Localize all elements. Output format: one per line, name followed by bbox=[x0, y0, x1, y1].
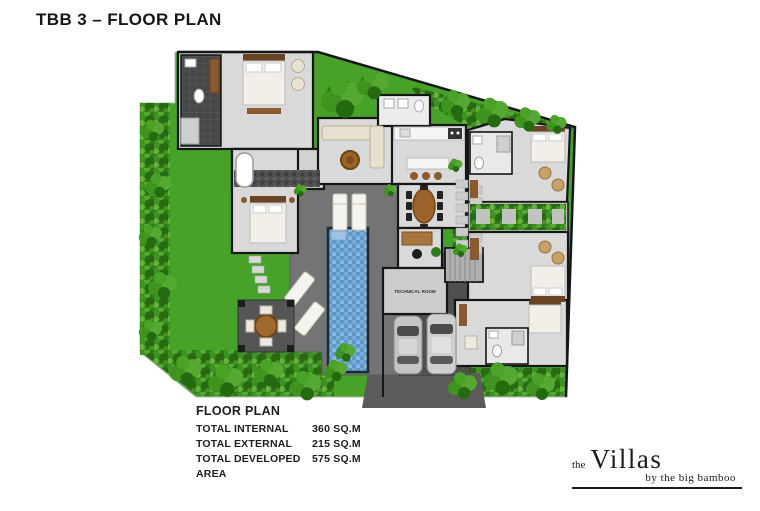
summary-label: TOTAL EXTERNAL bbox=[196, 437, 312, 452]
toilet-icon bbox=[475, 157, 484, 169]
summary-row-external: TOTAL EXTERNAL 215 SQ.M bbox=[196, 437, 426, 452]
chair bbox=[246, 320, 254, 332]
desk-chair bbox=[412, 249, 422, 259]
sofa-chaise bbox=[370, 126, 384, 168]
pool-steps bbox=[331, 231, 346, 240]
stool-icon bbox=[434, 172, 442, 180]
logo-prefix: the bbox=[572, 459, 585, 471]
dining-table bbox=[413, 189, 435, 223]
wardrobe bbox=[470, 180, 478, 198]
wardrobe bbox=[470, 238, 479, 260]
sink-icon bbox=[489, 331, 498, 338]
chair bbox=[465, 336, 477, 349]
floor-plan-summary: FLOOR PLAN TOTAL INTERNAL 360 SQ.M TOTAL… bbox=[196, 404, 426, 482]
armchair bbox=[552, 252, 564, 264]
pouf-chair bbox=[292, 60, 305, 73]
chair bbox=[260, 338, 272, 346]
bathtub-icon bbox=[236, 153, 253, 187]
summary-label: TOTAL INTERNAL bbox=[196, 422, 312, 437]
toilet-icon bbox=[493, 345, 502, 357]
logo-name: Villas bbox=[590, 444, 662, 475]
technical-room-label: TECHNICAL ROOM bbox=[394, 289, 435, 294]
summary-value: 215 SQ.M bbox=[312, 437, 426, 452]
car-1 bbox=[394, 316, 422, 374]
sink-icon bbox=[185, 59, 196, 67]
armchair bbox=[552, 179, 564, 191]
outdoor-table bbox=[255, 315, 277, 337]
plant-strip bbox=[470, 204, 566, 230]
summary-value: 575 SQ.M bbox=[312, 452, 426, 482]
toilet-icon bbox=[415, 100, 424, 112]
kitchen-island bbox=[407, 158, 449, 169]
stool-icon bbox=[410, 172, 418, 180]
sink-icon bbox=[473, 136, 482, 144]
pouf-chair bbox=[292, 78, 305, 91]
summary-row-developed: TOTAL DEVELOPED AREA 575 SQ.M bbox=[196, 452, 426, 482]
summary-heading: FLOOR PLAN bbox=[196, 404, 426, 418]
sink-icon bbox=[400, 129, 410, 137]
brand-logo: the Villas by the big bamboo bbox=[572, 444, 742, 489]
shower-icon bbox=[512, 331, 524, 345]
armchair bbox=[539, 167, 551, 179]
toilet-icon bbox=[194, 89, 204, 103]
shower-icon bbox=[497, 136, 510, 152]
chair bbox=[260, 306, 272, 314]
vanity-counter bbox=[210, 59, 219, 93]
logo-rule bbox=[572, 487, 742, 489]
summary-value: 360 SQ.M bbox=[312, 422, 426, 437]
summary-row-internal: TOTAL INTERNAL 360 SQ.M bbox=[196, 422, 426, 437]
bed bbox=[529, 305, 561, 333]
outdoor-dining bbox=[238, 300, 294, 352]
stool-icon bbox=[422, 172, 430, 180]
master-bathroom bbox=[181, 55, 221, 146]
wardrobe bbox=[459, 304, 467, 326]
summary-label: TOTAL DEVELOPED AREA bbox=[196, 452, 312, 482]
cooktop-icon bbox=[448, 128, 462, 139]
desk bbox=[402, 232, 432, 245]
chair bbox=[278, 320, 286, 332]
car-2 bbox=[427, 314, 456, 374]
armchair bbox=[539, 241, 551, 253]
plant-icon bbox=[431, 247, 441, 257]
